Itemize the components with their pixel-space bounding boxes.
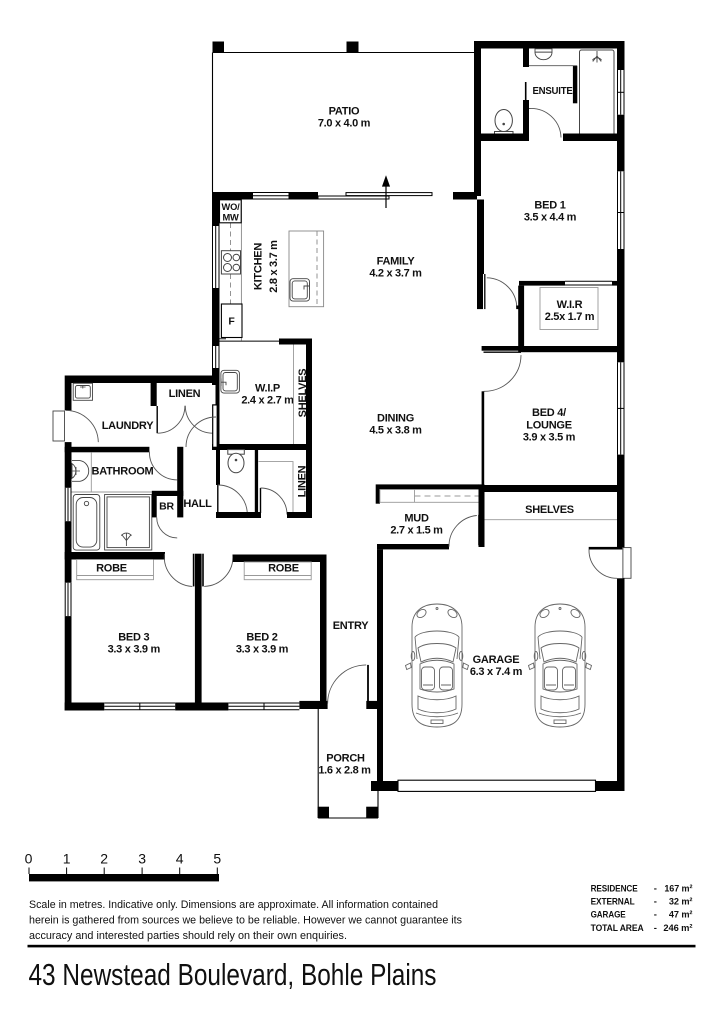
svg-text:HALL: HALL bbox=[183, 498, 212, 510]
svg-text:32 m²: 32 m² bbox=[669, 897, 693, 908]
svg-text:BED 2: BED 2 bbox=[246, 632, 277, 644]
svg-text:4.2 x 3.7 m: 4.2 x 3.7 m bbox=[369, 268, 422, 280]
svg-text:2.5x 1.7 m: 2.5x 1.7 m bbox=[545, 311, 595, 323]
svg-text:2.4 x 2.7 m: 2.4 x 2.7 m bbox=[241, 395, 294, 407]
svg-text:BED 3: BED 3 bbox=[118, 632, 149, 644]
svg-text:KITCHEN: KITCHEN bbox=[253, 243, 265, 290]
svg-text:2.7 x 1.5 m: 2.7 x 1.5 m bbox=[390, 525, 443, 537]
svg-text:accuracy and interested partie: accuracy and interested parties should r… bbox=[29, 930, 347, 942]
svg-text:ENSUITE: ENSUITE bbox=[533, 86, 574, 97]
svg-text:0: 0 bbox=[25, 851, 33, 867]
svg-text:-: - bbox=[654, 910, 657, 921]
svg-text:BED 1: BED 1 bbox=[534, 200, 565, 212]
svg-text:3.3 x 3.9 m: 3.3 x 3.9 m bbox=[236, 644, 289, 656]
svg-text:1: 1 bbox=[63, 851, 71, 867]
svg-text:BR: BR bbox=[159, 500, 174, 512]
svg-text:SHELVES: SHELVES bbox=[525, 504, 574, 516]
svg-text:ENTRY: ENTRY bbox=[333, 620, 370, 632]
svg-text:7.0 x 4.0 m: 7.0 x 4.0 m bbox=[318, 118, 371, 130]
svg-text:3.9 x 3.5 m: 3.9 x 3.5 m bbox=[523, 432, 576, 444]
svg-text:3.5 x 4.4 m: 3.5 x 4.4 m bbox=[524, 212, 577, 224]
svg-text:PATIO: PATIO bbox=[329, 106, 360, 118]
svg-text:2: 2 bbox=[100, 851, 108, 867]
svg-text:2.8 x 3.7 m: 2.8 x 3.7 m bbox=[268, 240, 280, 293]
svg-text:-: - bbox=[654, 897, 657, 908]
svg-text:47 m²: 47 m² bbox=[669, 910, 693, 921]
svg-text:LINEN: LINEN bbox=[169, 388, 201, 400]
svg-text:BED 4/: BED 4/ bbox=[532, 407, 566, 419]
svg-text:FAMILY: FAMILY bbox=[377, 256, 416, 268]
svg-text:-: - bbox=[654, 884, 657, 895]
svg-text:MW: MW bbox=[222, 212, 239, 222]
svg-text:167 m²: 167 m² bbox=[664, 884, 692, 895]
svg-text:6.3 x 7.4 m: 6.3 x 7.4 m bbox=[470, 666, 523, 678]
svg-text:4: 4 bbox=[176, 851, 184, 867]
svg-text:TOTAL AREA: TOTAL AREA bbox=[591, 923, 644, 934]
svg-text:herein is gathered from source: herein is gathered from sources we belie… bbox=[29, 914, 462, 926]
svg-text:3.3 x 3.9 m: 3.3 x 3.9 m bbox=[108, 644, 161, 656]
svg-text:F: F bbox=[228, 316, 235, 328]
svg-text:4.5 x 3.8 m: 4.5 x 3.8 m bbox=[369, 425, 422, 437]
svg-text:ROBE: ROBE bbox=[96, 563, 127, 575]
svg-text:1.6 x 2.8 m: 1.6 x 2.8 m bbox=[318, 765, 371, 777]
svg-text:ROBE: ROBE bbox=[268, 563, 299, 575]
svg-text:LINEN: LINEN bbox=[297, 465, 309, 497]
svg-text:43 Newstead Boulevard, Bohle P: 43 Newstead Boulevard, Bohle Plains bbox=[29, 958, 437, 992]
svg-text:DINING: DINING bbox=[377, 413, 414, 425]
svg-text:LAUNDRY: LAUNDRY bbox=[102, 420, 155, 432]
svg-text:5: 5 bbox=[213, 851, 221, 867]
svg-text:LOUNGE: LOUNGE bbox=[526, 419, 572, 431]
svg-text:GARAGE: GARAGE bbox=[473, 654, 520, 666]
svg-text:BATHROOM: BATHROOM bbox=[92, 466, 154, 478]
svg-text:W.I.R: W.I.R bbox=[557, 299, 583, 311]
svg-text:GARAGE: GARAGE bbox=[591, 910, 626, 921]
svg-text:EXTERNAL: EXTERNAL bbox=[591, 897, 635, 908]
svg-text:MUD: MUD bbox=[404, 513, 429, 525]
svg-text:3: 3 bbox=[138, 851, 146, 867]
svg-text:WO/: WO/ bbox=[222, 202, 241, 212]
svg-text:PORCH: PORCH bbox=[326, 753, 365, 765]
svg-text:246 m²: 246 m² bbox=[663, 923, 692, 934]
svg-text:W.I.P: W.I.P bbox=[255, 383, 280, 395]
svg-text:-: - bbox=[654, 923, 657, 934]
svg-text:Scale in metres. Indicative on: Scale in metres. Indicative only. Dimens… bbox=[29, 899, 438, 911]
svg-text:RESIDENCE: RESIDENCE bbox=[591, 884, 638, 895]
